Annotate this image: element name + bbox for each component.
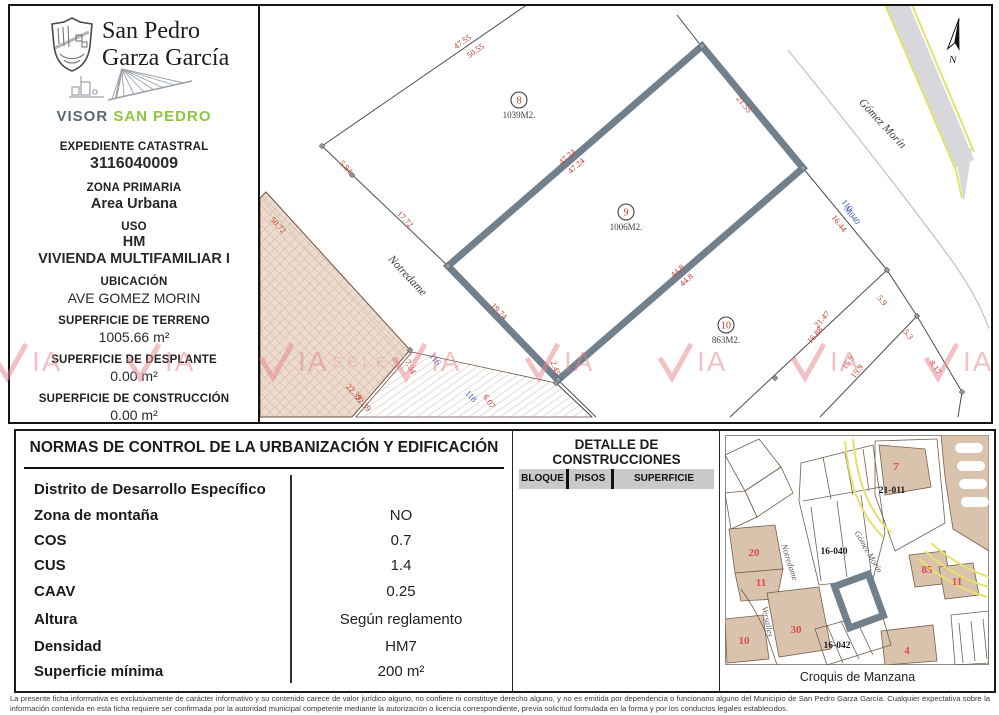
parcel-number: 30 — [791, 624, 803, 636]
column-header-pisos: PISOS — [569, 469, 611, 489]
row-value: 0.7 — [290, 532, 512, 549]
detalle-title-line2: CONSTRUCCIONES — [513, 452, 720, 467]
block-id-label: 16-042 — [824, 641, 851, 651]
cadastral-map: 8 1039M2. 9 1006M2. 10 863M2. 47.55 50.5… — [260, 6, 989, 418]
legal-disclaimer: La presente ficha informativa es exclusi… — [10, 694, 990, 714]
uso-label: USO — [10, 221, 258, 233]
parcel-number: 11 — [952, 576, 962, 588]
row-value: 0.25 — [290, 583, 512, 600]
parcel-number: 11 — [756, 577, 766, 589]
row-label: CUS — [16, 557, 290, 574]
expediente-label: EXPEDIENTE CATASTRAL — [10, 141, 258, 153]
sidebar: San Pedro Garza García — [10, 6, 260, 422]
parcel-number: 7 — [893, 461, 899, 473]
visor-bridge-icon — [64, 66, 204, 108]
uso-value-2: VIVIENDA MULTIFAMILIAR I — [10, 251, 258, 267]
parcel-number: 20 — [749, 547, 761, 559]
croquis-panel: 7 20 85 11 11 30 10 4 21-011 16-040 16-0… — [719, 431, 995, 691]
normas-panel: NORMAS DE CONTROL DE LA URBANIZACIÓN Y E… — [16, 431, 512, 691]
construccion-value: 0.00 m² — [10, 407, 258, 423]
normas-divider — [24, 467, 504, 469]
dim-label: 16.88 — [805, 325, 825, 346]
table-row: CAAV 0.25 — [16, 578, 512, 605]
zona-label: ZONA PRIMARIA — [10, 182, 258, 194]
croquis-map: 7 20 85 11 11 30 10 4 21-011 16-040 16-0… — [725, 435, 989, 665]
row-label: Altura — [16, 611, 290, 628]
row-value: 200 m² — [290, 663, 512, 680]
croquis-caption: Croquis de Manzana — [720, 670, 995, 684]
normas-table: Distrito de Desarrollo Específico Zona d… — [16, 475, 512, 687]
bottom-section: NORMAS DE CONTROL DE LA URBANIZACIÓN Y E… — [14, 429, 996, 693]
dim-label: 5.3 — [901, 327, 915, 342]
row-label: Densidad — [16, 638, 290, 655]
ubicacion-label: UBICACIÓN — [10, 276, 258, 288]
table-row: Altura Según reglamento — [16, 605, 512, 634]
expediente-value: 3116040009 — [10, 155, 258, 173]
parcel-number: 10 — [721, 321, 731, 332]
terreno-value: 1005.66 m² — [10, 329, 258, 345]
row-label: Superficie mínima — [16, 663, 290, 680]
dim-label: 50.55 — [465, 41, 486, 60]
street-label-gomez-morin: Gómez Morín — [856, 97, 908, 152]
table-row: Superficie mínima 200 m² — [16, 659, 512, 684]
row-value: NO — [290, 507, 512, 524]
normas-column-divider — [290, 475, 292, 683]
detalle-title: DETALLE DE CONSTRUCCIONES — [513, 437, 720, 467]
north-letter: N — [948, 54, 957, 66]
row-label: Zona de montaña — [16, 507, 290, 524]
parcel-10-bubble: 10 863M2. — [712, 317, 740, 345]
cadastral-fields: EXPEDIENTE CATASTRAL 3116040009 ZONA PRI… — [10, 132, 258, 423]
row-value: HM7 — [290, 638, 512, 655]
municipality-line1: San Pedro — [102, 18, 229, 45]
parcel-number: 8 — [517, 96, 522, 107]
table-row: Zona de montaña NO — [16, 503, 512, 528]
ubicacion-value: AVE GOMEZ MORIN — [10, 290, 258, 306]
table-row: Densidad HM7 — [16, 634, 512, 659]
visor-word-green: SAN PEDRO — [113, 108, 211, 125]
block-id-label: 21-011 — [879, 486, 906, 496]
block-id-label: 16-040 — [821, 547, 848, 557]
zona-value: Area Urbana — [10, 196, 258, 212]
parcel-number: 85 — [922, 564, 934, 576]
row-label: COS — [16, 532, 290, 549]
top-section: San Pedro Garza García — [8, 4, 993, 424]
parcel-area-label: 1039M2. — [503, 110, 536, 120]
parcel-8-bubble: 8 1039M2. — [503, 92, 536, 120]
detalle-title-line1: DETALLE DE — [513, 437, 720, 452]
parcel-number: 10 — [739, 635, 751, 647]
municipal-crest-icon — [50, 16, 94, 72]
desplante-label: SUPERFICIE DE DESPLANTE — [10, 354, 258, 366]
row-value: 1.4 — [290, 557, 512, 574]
terreno-label: SUPERFICIE DE TERRENO — [10, 315, 258, 327]
parcel-area-label: 863M2. — [712, 335, 740, 345]
parcel-area-label: 1006M2. — [610, 222, 643, 232]
parcel-number: 4 — [904, 645, 910, 657]
visor-word-bold: VISOR — [56, 108, 108, 125]
street-label-notredame: Notredame — [385, 253, 429, 299]
table-row: Distrito de Desarrollo Específico — [16, 475, 512, 503]
desplante-value: 0.00 m² — [10, 368, 258, 384]
row-label: Distrito de Desarrollo Específico — [16, 481, 290, 498]
table-row: CUS 1.4 — [16, 553, 512, 578]
dim-label: 8.17 — [927, 358, 944, 376]
construccion-label: SUPERFICIE DE CONSTRUCCIÓN — [10, 393, 258, 405]
ficha-catastral-page: San Pedro Garza García — [0, 0, 999, 715]
row-value: Según reglamento — [290, 611, 512, 628]
normas-title: NORMAS DE CONTROL DE LA URBANIZACIÓN Y E… — [16, 439, 512, 457]
table-row: COS 0.7 — [16, 528, 512, 553]
dim-label: 5.9 — [875, 293, 889, 308]
municipality-name: San Pedro Garza García — [102, 18, 229, 72]
visor-wordmark: VISOR SAN PEDRO — [10, 108, 258, 125]
detalle-panel: DETALLE DE CONSTRUCCIONES BLOQUE PISOS S… — [512, 431, 720, 691]
row-label: CAAV — [16, 583, 290, 600]
detalle-header-row: BLOQUE PISOS SUPERFICIE — [519, 469, 714, 489]
column-header-bloque: BLOQUE — [519, 469, 566, 489]
column-header-superficie: SUPERFICIE — [614, 469, 714, 489]
parcel-number: 9 — [624, 208, 629, 219]
uso-value-1: HM — [10, 234, 258, 250]
north-arrow-icon: N — [945, 17, 965, 66]
